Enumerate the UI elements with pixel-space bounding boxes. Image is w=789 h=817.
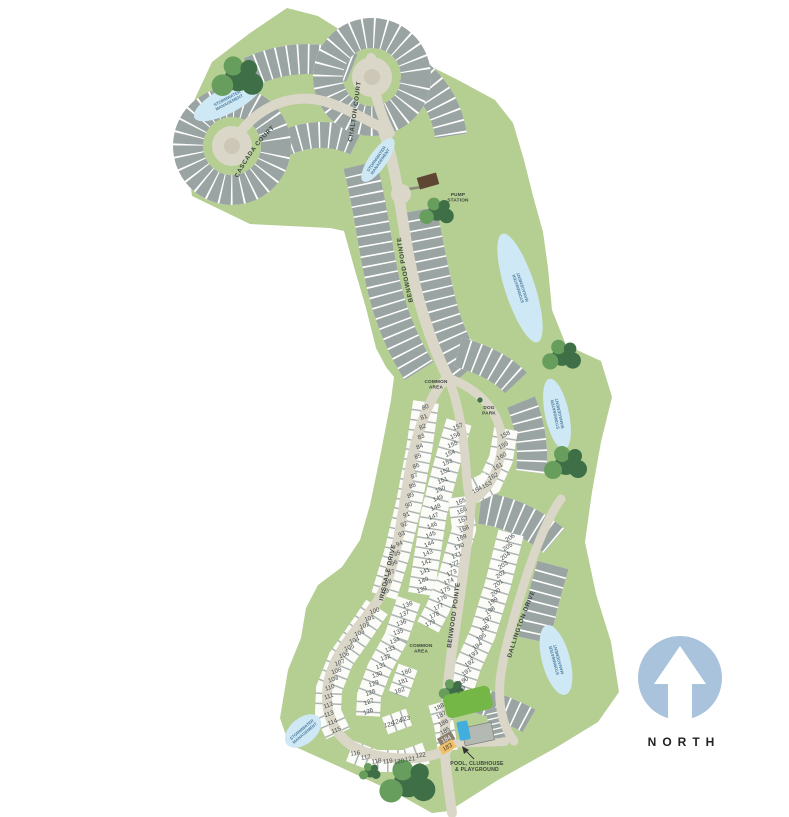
- lot-number: 116: [350, 749, 361, 757]
- tree-icon: [554, 446, 570, 462]
- dog-park-label: DOGPARK: [482, 405, 496, 415]
- tree-icon: [569, 460, 587, 478]
- tree-icon: [412, 778, 435, 801]
- tree-icon: [439, 209, 453, 223]
- tree-icon: [240, 60, 257, 77]
- site-plan-page: STORMWATERMANAGEMENTSTORMWATERMANAGEMENT…: [0, 0, 789, 817]
- tree-icon: [359, 771, 368, 780]
- tree-icon: [411, 764, 429, 782]
- tree-icon: [419, 210, 433, 224]
- culdesac-chalton-island: [364, 69, 380, 85]
- lot-number: 121: [405, 755, 417, 763]
- dog-park-tree-icon: [477, 397, 482, 402]
- tree-icon: [564, 343, 577, 356]
- lot-number: 117: [361, 753, 372, 761]
- tree-icon: [445, 679, 455, 689]
- tree-icon: [212, 74, 234, 96]
- pool-clubhouse-label: POOL, CLUBHOUSE& PLAYGROUND: [450, 761, 504, 773]
- tree-icon: [542, 353, 558, 369]
- lot-number: 122: [415, 751, 427, 759]
- site-map: STORMWATERMANAGEMENTSTORMWATERMANAGEMENT…: [0, 0, 789, 817]
- road-turnaround-bulb: [391, 184, 411, 204]
- tree-icon: [568, 449, 582, 463]
- lot-number: 118: [371, 757, 382, 765]
- north-emblem: NORTH: [638, 636, 722, 749]
- tree-icon: [551, 340, 565, 354]
- culdesac-cascada-island: [224, 138, 240, 154]
- north-label: NORTH: [648, 735, 721, 749]
- tree-icon: [565, 352, 581, 368]
- tree-icon: [224, 56, 243, 75]
- lot-number: 120: [394, 757, 406, 765]
- lot-number: 119: [382, 757, 393, 765]
- tree-icon: [242, 73, 264, 95]
- tree-icon: [364, 763, 372, 771]
- tree-icon: [544, 461, 562, 479]
- tree-icon: [372, 770, 381, 779]
- tree-icon: [379, 779, 402, 802]
- tree-icon: [427, 198, 440, 211]
